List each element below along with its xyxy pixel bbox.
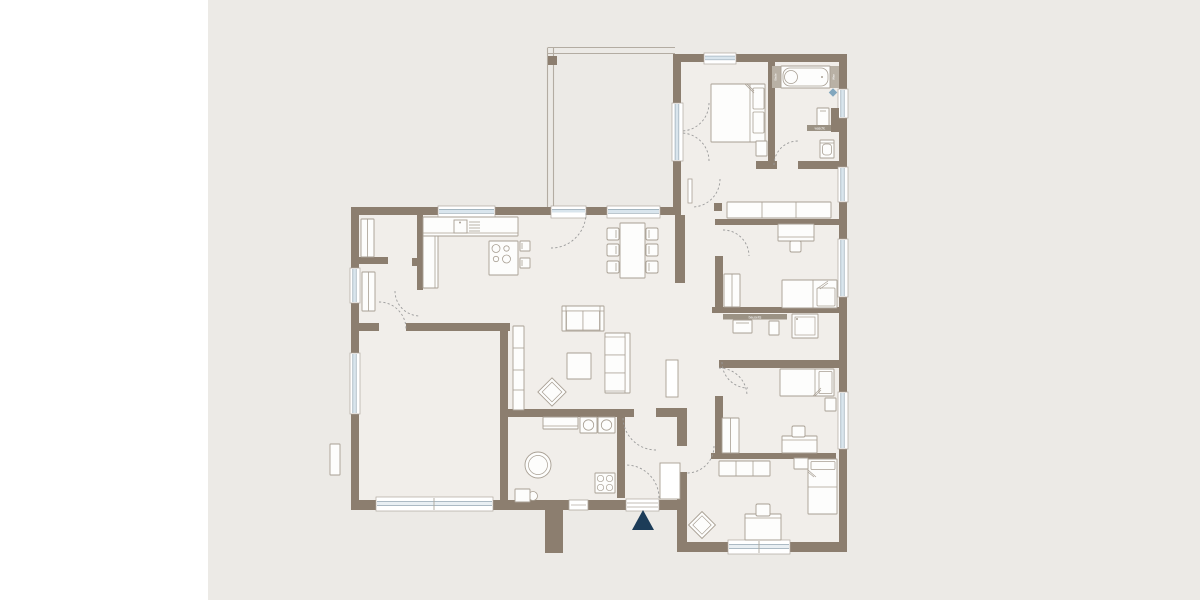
svg-text:bauseits: bauseits [749,316,762,320]
svg-text:Bade: Bade [774,73,778,80]
svg-text:Wan: Wan [832,74,836,80]
svg-text:wascht.: wascht. [815,127,826,131]
